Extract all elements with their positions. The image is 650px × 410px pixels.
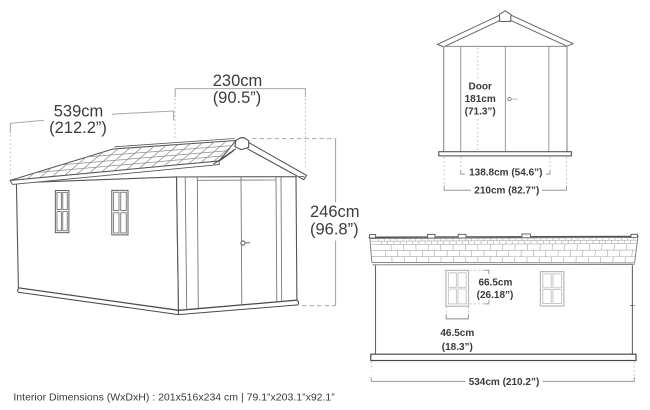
svg-text:Interior Dimensions (WxDxH) :: Interior Dimensions (WxDxH) : 201x516x23…	[13, 391, 335, 403]
svg-text:534cm (210.2”): 534cm (210.2”)	[469, 377, 540, 388]
svg-text:210cm (82.7”): 210cm (82.7”)	[474, 185, 539, 196]
svg-text:(96.8”): (96.8”)	[310, 220, 359, 238]
svg-text:66.5cm: 66.5cm	[478, 277, 512, 288]
svg-text:246cm: 246cm	[310, 203, 360, 221]
svg-text:(18.3”): (18.3”)	[442, 342, 473, 353]
svg-text:(90.5”): (90.5”)	[213, 89, 262, 107]
svg-text:539cm: 539cm	[54, 103, 104, 121]
svg-text:(71.3”): (71.3”)	[465, 106, 496, 117]
svg-text:(26.18”): (26.18”)	[477, 290, 514, 301]
svg-text:Door: Door	[469, 82, 492, 93]
svg-text:138.8cm (54.6”): 138.8cm (54.6”)	[469, 167, 542, 178]
svg-text:(212.2”): (212.2”)	[49, 119, 107, 137]
svg-text:46.5cm: 46.5cm	[440, 328, 474, 339]
svg-text:181cm: 181cm	[465, 94, 496, 105]
svg-text:230cm: 230cm	[213, 72, 263, 90]
